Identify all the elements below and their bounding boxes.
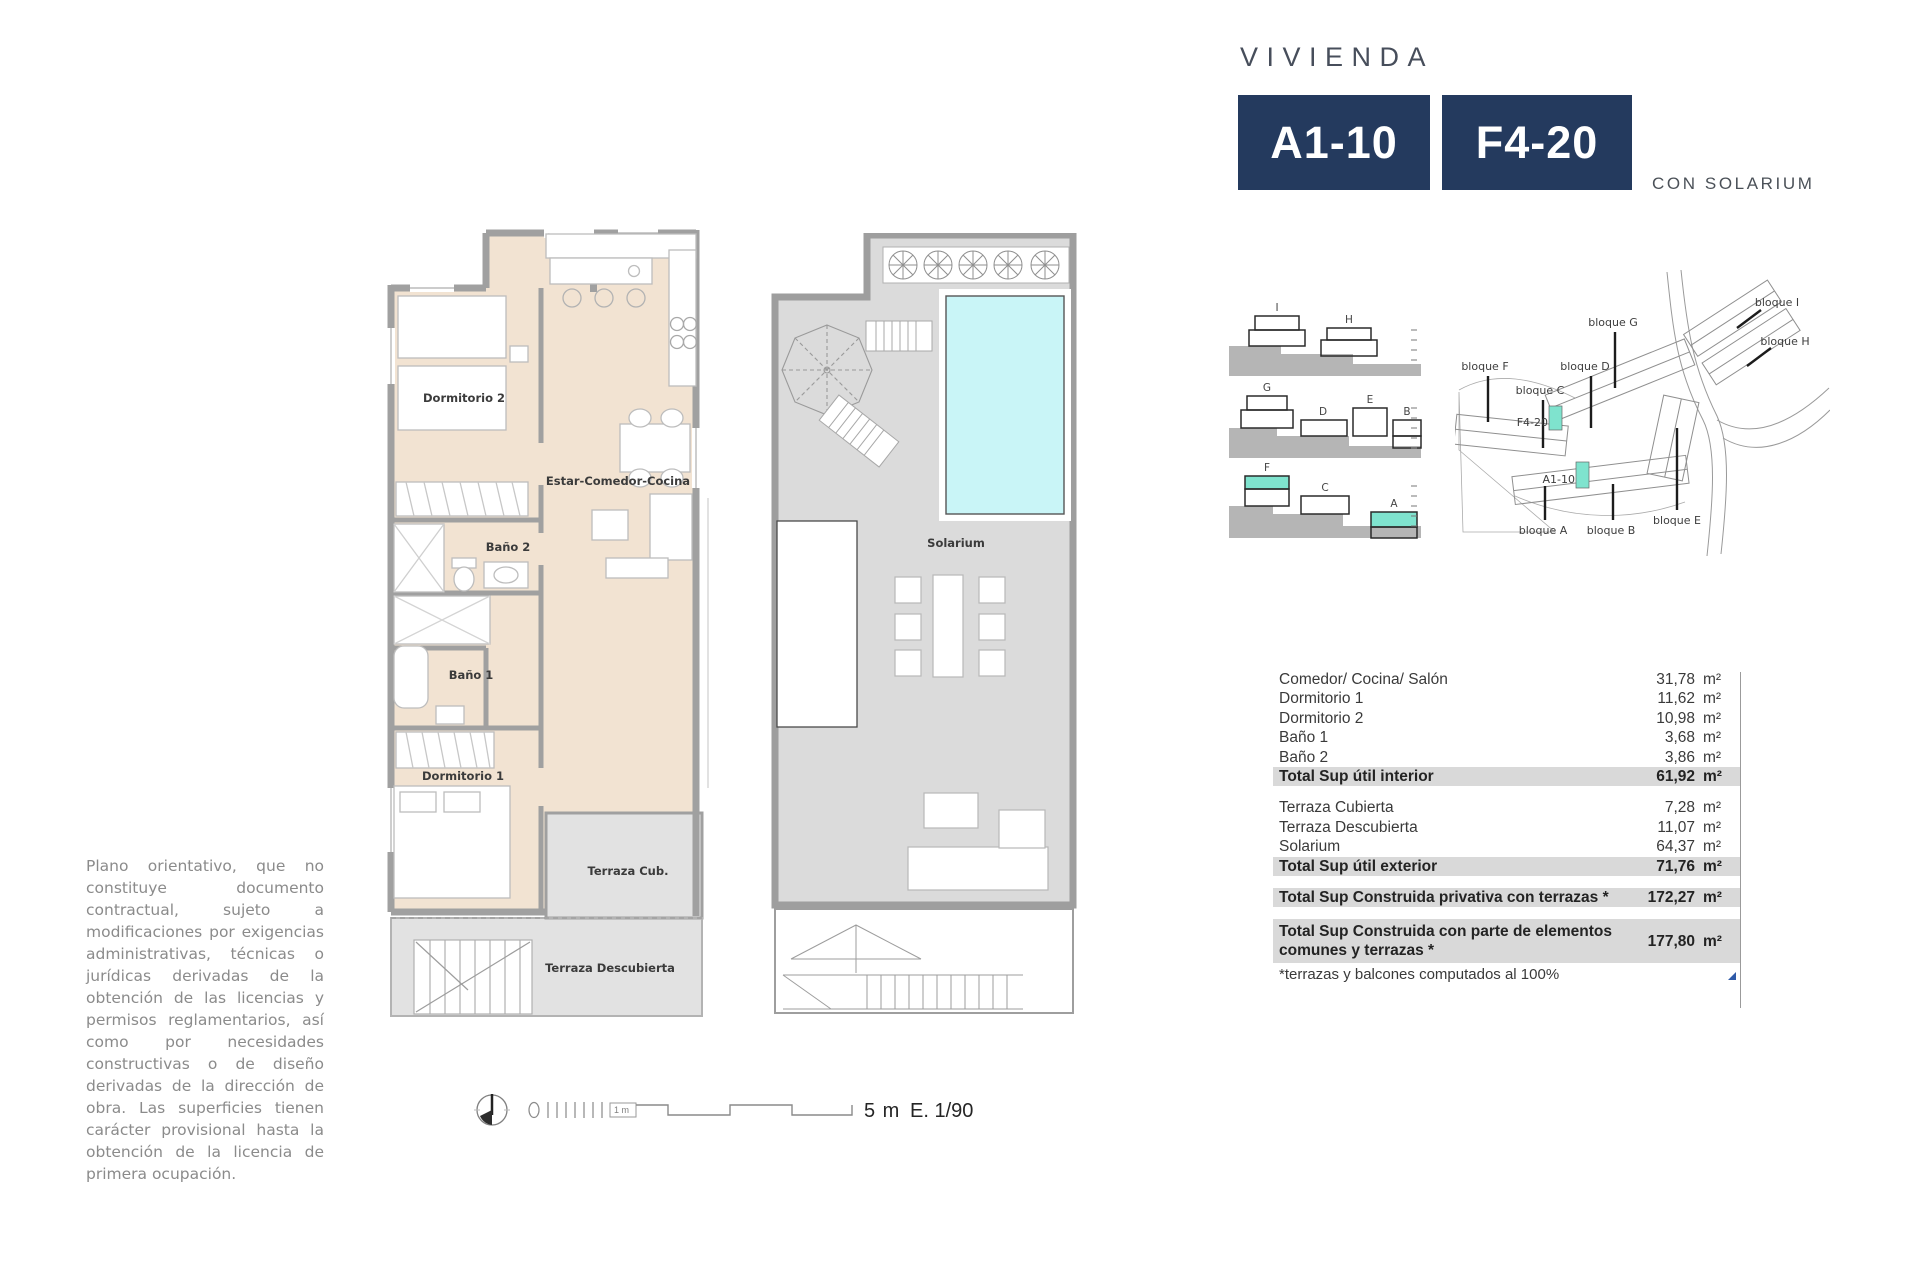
area-value: 11,62 bbox=[1645, 689, 1695, 708]
unit-badge-a1-10: A1-10 bbox=[1238, 95, 1430, 190]
area-value: 7,28 bbox=[1645, 798, 1695, 817]
area-table: Comedor/ Cocina/ Salón 31,78 m² Dormitor… bbox=[1273, 670, 1741, 983]
elevation-ticks bbox=[1411, 408, 1417, 448]
area-unit: m² bbox=[1695, 748, 1735, 767]
site-label-f4-20: F4-20 bbox=[1517, 416, 1548, 429]
area-value: 61,92 bbox=[1645, 767, 1695, 786]
site-label-bloque-c: bloque C bbox=[1516, 384, 1565, 397]
outdoor-dining-set bbox=[895, 575, 1005, 677]
area-unit: m² bbox=[1695, 818, 1735, 837]
area-label: Terraza Cubierta bbox=[1279, 798, 1645, 817]
area-total-row: Total Sup útil exterior 71,76 m² bbox=[1273, 857, 1741, 876]
elevation-label: I bbox=[1275, 302, 1278, 314]
area-unit: m² bbox=[1695, 837, 1735, 856]
area-value: 10,98 bbox=[1645, 709, 1695, 728]
table-right-rule bbox=[1740, 672, 1741, 1008]
elevation-ground bbox=[1229, 346, 1421, 376]
area-unit: m² bbox=[1695, 767, 1735, 786]
subtitle-con-solarium: CON SOLARIUM bbox=[1652, 174, 1815, 194]
area-label: Dormitorio 2 bbox=[1279, 709, 1645, 728]
area-value: 177,80 bbox=[1645, 932, 1695, 951]
area-label: Total Sup útil exterior bbox=[1279, 857, 1645, 876]
stairs-icon bbox=[775, 909, 1073, 1013]
area-value: 172,27 bbox=[1645, 888, 1695, 907]
area-label: Dormitorio 1 bbox=[1279, 689, 1645, 708]
area-value: 3,86 bbox=[1645, 748, 1695, 767]
elevation-sections: I H G D E B F C A bbox=[1225, 300, 1425, 545]
area-row: Solarium 64,37 m² bbox=[1273, 837, 1741, 856]
area-row: Terraza Descubierta 11,07 m² bbox=[1273, 818, 1741, 837]
area-unit: m² bbox=[1695, 857, 1735, 876]
area-value: 64,37 bbox=[1645, 837, 1695, 856]
site-unit-f4-20 bbox=[1549, 406, 1562, 430]
elevation-label: F bbox=[1264, 462, 1270, 474]
pool bbox=[939, 289, 1071, 521]
highlighted-unit-a bbox=[1371, 512, 1417, 527]
area-row: Dormitorio 1 11,62 m² bbox=[1273, 689, 1741, 708]
scale-1m-label: 1 m bbox=[614, 1105, 629, 1115]
scale-bar: 1 m 5 m E. 1/90 bbox=[470, 1085, 990, 1135]
stairs-icon bbox=[414, 940, 532, 1014]
area-unit: m² bbox=[1695, 888, 1735, 907]
area-row: Dormitorio 2 10,98 m² bbox=[1273, 709, 1741, 728]
area-label: Solarium bbox=[1279, 837, 1645, 856]
site-label-bloque-h: bloque H bbox=[1760, 335, 1809, 348]
area-label: Terraza Descubierta bbox=[1279, 818, 1645, 837]
area-label: Comedor/ Cocina/ Salón bbox=[1279, 670, 1645, 689]
site-label-bloque-f: bloque F bbox=[1461, 360, 1508, 373]
floor-plan-solarium: Solarium bbox=[771, 233, 1078, 1016]
area-total-row: Total Sup Construida con parte de elemen… bbox=[1273, 919, 1741, 963]
area-value: 71,76 bbox=[1645, 857, 1695, 876]
room-label-terraza-descubierta: Terraza Descubierta bbox=[545, 961, 675, 975]
area-total-row: Total Sup útil interior 61,92 m² bbox=[1273, 767, 1741, 786]
area-row: Comedor/ Cocina/ Salón 31,78 m² bbox=[1273, 670, 1741, 689]
site-label-bloque-b: bloque B bbox=[1587, 524, 1636, 537]
area-label: Total Sup Construida privativa con terra… bbox=[1279, 888, 1645, 907]
site-label-bloque-a: bloque A bbox=[1519, 524, 1568, 537]
scale-5m-label: 5 m bbox=[864, 1100, 900, 1122]
disclaimer-text: Plano orientativo, que no constituye doc… bbox=[86, 855, 324, 1185]
area-label: Total Sup útil interior bbox=[1279, 767, 1645, 786]
room-label-dormitorio-1: Dormitorio 1 bbox=[422, 769, 504, 783]
room-label-solarium: Solarium bbox=[927, 536, 985, 550]
room-label-bano-2: Baño 2 bbox=[486, 540, 531, 554]
area-value: 3,68 bbox=[1645, 728, 1695, 747]
room-label-terraza-cub: Terraza Cub. bbox=[588, 864, 669, 878]
area-label: Baño 1 bbox=[1279, 728, 1645, 747]
room-label-estar-comedor-cocina: Estar-Comedor-Cocina bbox=[546, 474, 690, 488]
area-unit: m² bbox=[1695, 689, 1735, 708]
room-label-bano-1: Baño 1 bbox=[449, 668, 494, 682]
table-footnote: *terrazas y balcones computados al 100% bbox=[1273, 963, 1741, 983]
area-total-row: Total Sup Construida privativa con terra… bbox=[1273, 888, 1741, 907]
elevation-label: H bbox=[1345, 314, 1353, 326]
elevation-label: A bbox=[1390, 498, 1398, 510]
site-label-bloque-i: bloque I bbox=[1755, 296, 1799, 309]
area-value: 31,78 bbox=[1645, 670, 1695, 689]
elevation-label: B bbox=[1403, 406, 1410, 418]
area-unit: m² bbox=[1695, 728, 1735, 747]
area-unit: m² bbox=[1695, 670, 1735, 689]
site-label-a1-10: A1-10 bbox=[1543, 473, 1576, 486]
elevation-label: E bbox=[1367, 394, 1374, 406]
highlighted-unit-f bbox=[1245, 476, 1289, 489]
area-row: Baño 2 3,86 m² bbox=[1273, 748, 1741, 767]
sun-lounger bbox=[866, 321, 932, 351]
skylight-opening bbox=[777, 521, 857, 727]
unit-badge-f4-20: F4-20 bbox=[1442, 95, 1632, 190]
compass-icon bbox=[474, 1094, 510, 1125]
elevation-ticks bbox=[1411, 330, 1417, 360]
area-label: Total Sup Construida con parte de elemen… bbox=[1279, 922, 1645, 960]
floor-plan-interior: Dormitorio 2 Estar-Comedor-Cocina Baño 2… bbox=[386, 228, 710, 1018]
area-row: Baño 1 3,68 m² bbox=[1273, 728, 1741, 747]
elevation-label: C bbox=[1321, 482, 1328, 494]
area-row: Terraza Cubierta 7,28 m² bbox=[1273, 798, 1741, 817]
elevation-ground bbox=[1229, 428, 1421, 458]
area-value: 11,07 bbox=[1645, 818, 1695, 837]
marker-triangle-icon bbox=[1728, 972, 1736, 980]
site-unit-a1-10 bbox=[1576, 462, 1589, 488]
elevation-label: D bbox=[1319, 406, 1327, 418]
elevation-label: G bbox=[1263, 382, 1271, 394]
area-label: Baño 2 bbox=[1279, 748, 1645, 767]
scale-ratio-label: E. 1/90 bbox=[910, 1100, 973, 1122]
plan-sheet: VIVIENDA A1-10 F4-20 CON SOLARIUM bbox=[0, 0, 1920, 1280]
area-unit: m² bbox=[1695, 932, 1735, 951]
site-plan: bloque F bloque C bloque G bloque D bloq… bbox=[1455, 270, 1830, 562]
room-label-dormitorio-2: Dormitorio 2 bbox=[423, 391, 505, 405]
area-unit: m² bbox=[1695, 798, 1735, 817]
page-title: VIVIENDA bbox=[1240, 42, 1434, 73]
planter-strip bbox=[883, 247, 1069, 283]
graphic-scale: 1 m bbox=[529, 1102, 852, 1118]
site-label-bloque-e: bloque E bbox=[1653, 514, 1701, 527]
site-label-bloque-d: bloque D bbox=[1560, 360, 1609, 373]
area-unit: m² bbox=[1695, 709, 1735, 728]
site-buildings bbox=[1455, 280, 1800, 504]
site-label-bloque-g: bloque G bbox=[1588, 316, 1638, 329]
